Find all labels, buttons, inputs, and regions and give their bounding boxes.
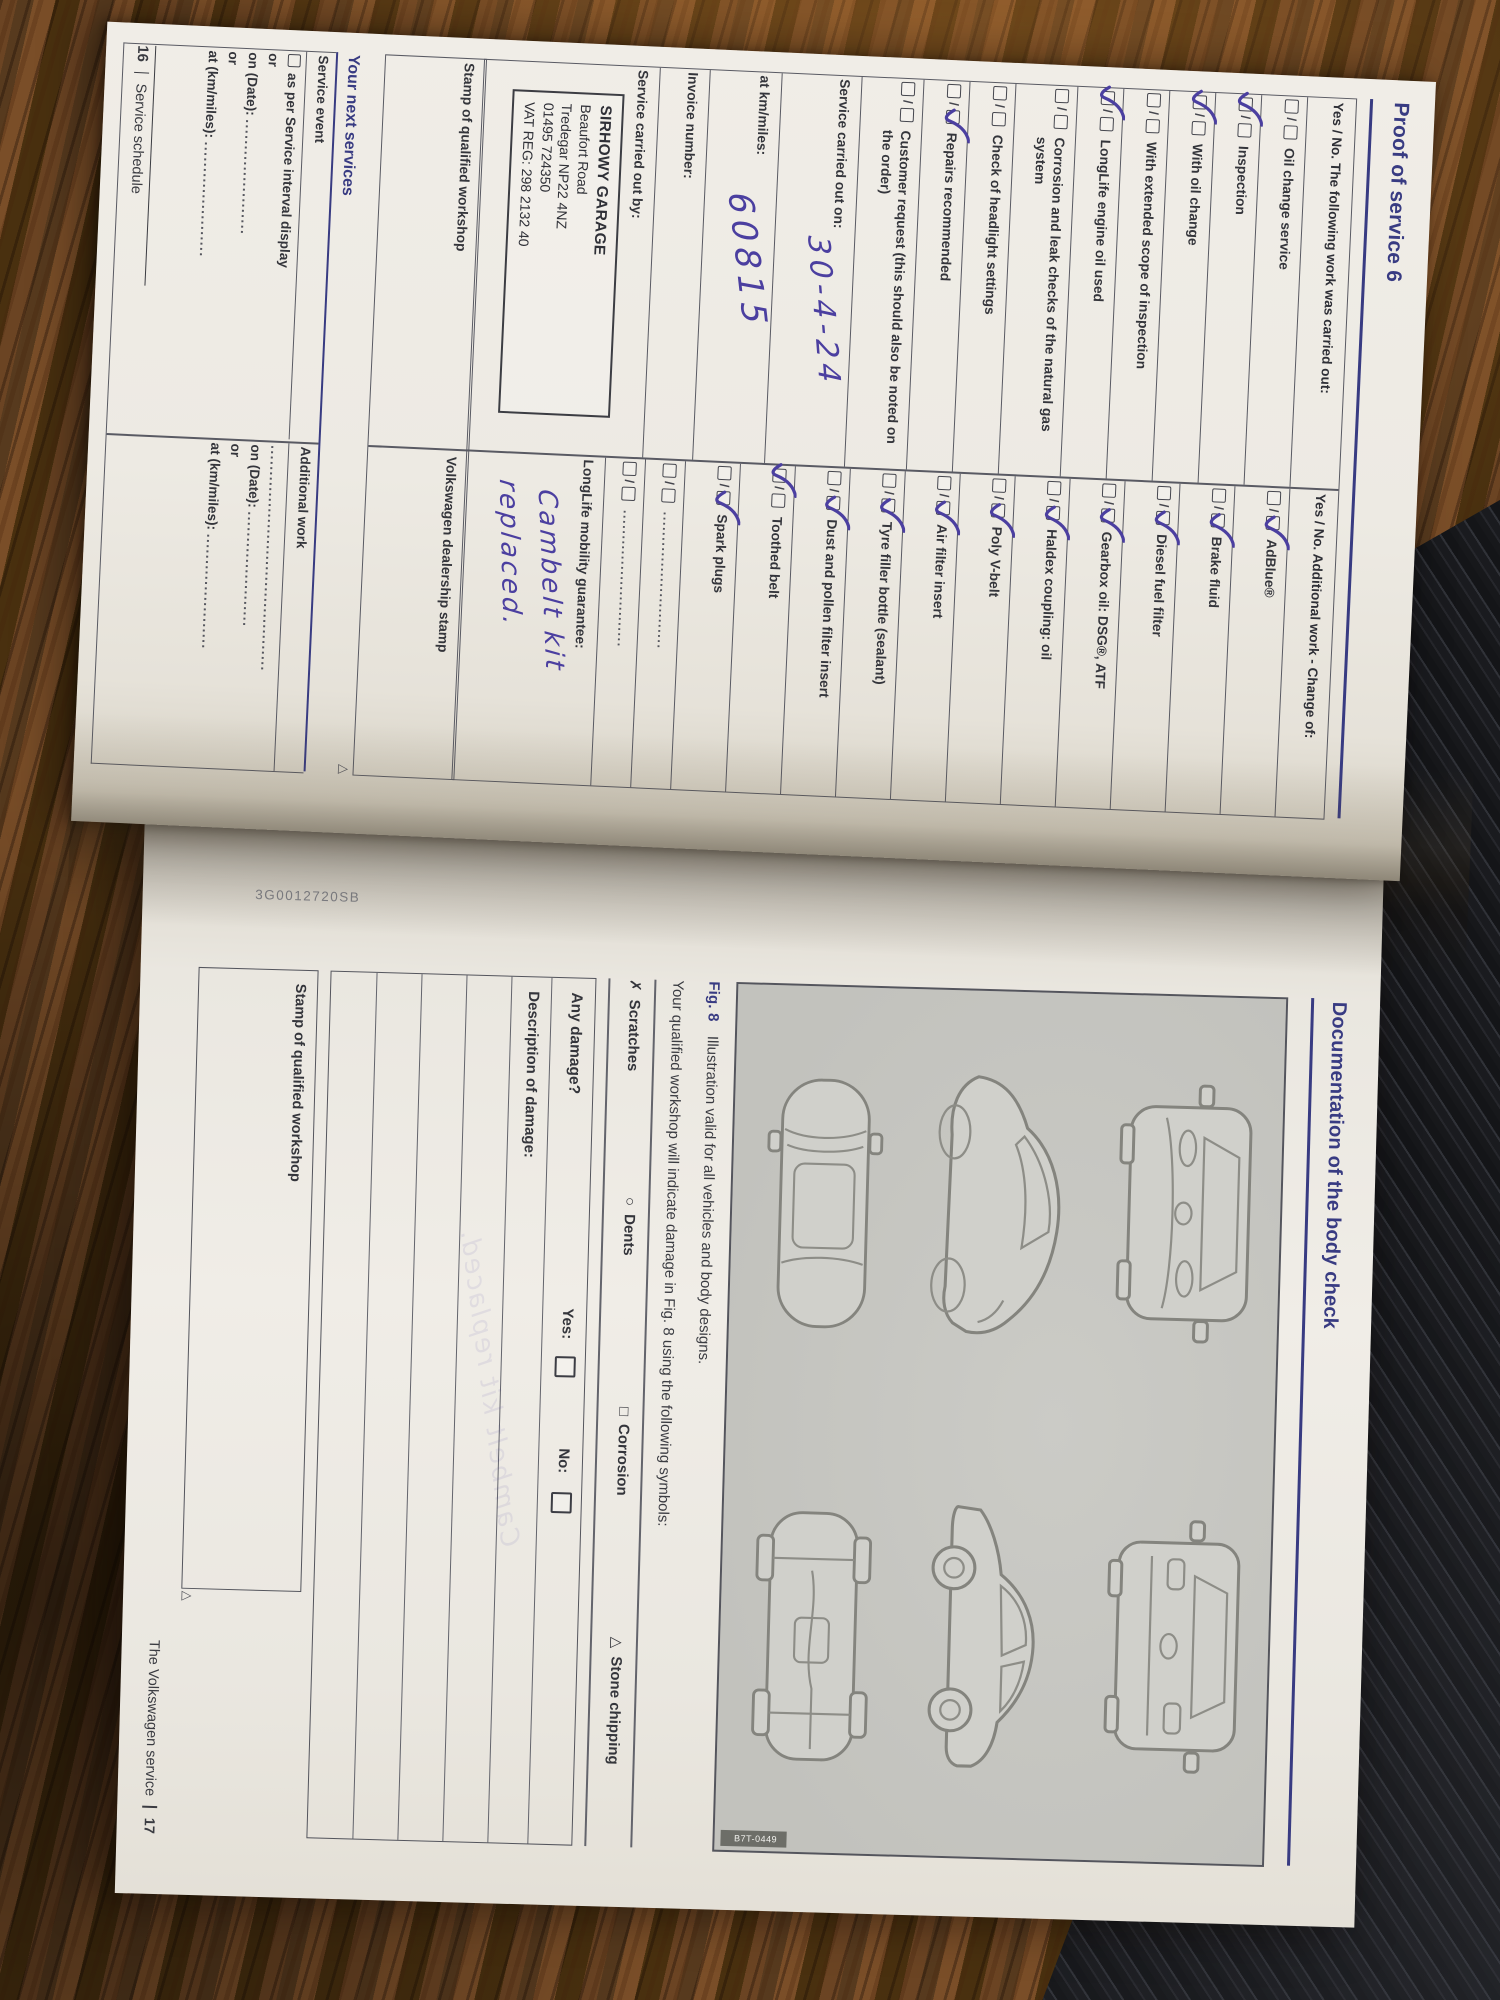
- yes-checkbox: [1055, 89, 1070, 104]
- workshop-stamp-area: Stamp of qualified workshop: [181, 967, 318, 1592]
- yes-no-checkbox-pair: /: [1101, 483, 1118, 523]
- slash: /: [937, 493, 952, 497]
- yes-checkbox: [1102, 483, 1117, 498]
- mobility-handwriting: Cambelt kit: [532, 488, 570, 673]
- heading-rule: [1287, 998, 1314, 1866]
- car-view-top-icon: [732, 984, 920, 1422]
- description-of-damage-label: Description of damage:: [520, 991, 542, 1158]
- checklist-item-label: Oil change service: [1275, 148, 1298, 271]
- km-label: at km/miles:: [754, 75, 773, 155]
- no-checkbox: [900, 107, 915, 122]
- handwritten-tick-icon: [1150, 508, 1182, 545]
- corner-continuation-mark: △: [179, 1591, 195, 1601]
- figure-code-chip: B7T-0449: [720, 1830, 786, 1848]
- service-date-value: 30-4-24: [800, 235, 847, 388]
- slash: /: [882, 491, 897, 495]
- legend-dents: ○Dents: [615, 1197, 639, 1407]
- yes-no-checkbox-pair: /: [1266, 490, 1283, 530]
- yes-checkbox: [901, 82, 916, 97]
- car-view-front-quarter-icon: [908, 989, 1106, 1427]
- slash: /: [1146, 111, 1161, 115]
- form-part-number: 3G0012720SB: [255, 887, 415, 906]
- no-checkbox: [662, 489, 677, 504]
- legend-scratches: ✗Scratches: [620, 979, 644, 1197]
- checklist-item-label: Check of headlight settings: [980, 134, 1006, 315]
- yes-no-checkbox-pair: /: [661, 463, 678, 503]
- yes-no-checkbox-pair: /: [1211, 488, 1228, 528]
- handwritten-tick-icon: [1040, 503, 1072, 540]
- legend-stone-chipping: △Stone chipping: [605, 1637, 627, 1765]
- slash: /: [946, 102, 961, 106]
- damage-no-checkbox: [551, 1492, 573, 1514]
- slash: /: [992, 496, 1007, 500]
- handwritten-tick-icon: [1260, 513, 1292, 550]
- invoice-label: Invoice number:: [681, 72, 701, 179]
- figure-code: B7T-0449: [723, 1833, 787, 1845]
- yes-no-checkbox-pair: /: [1046, 480, 1063, 520]
- small-checkbox: [288, 54, 302, 68]
- handwritten-tick-icon: [1095, 84, 1127, 121]
- carried-out-by-field: Service carried out by: SIRHOWY GARAGE B…: [469, 60, 661, 457]
- damage-report-table: Any damage? Yes: No: Description of dama…: [306, 971, 596, 1846]
- garage-stamp: SIRHOWY GARAGE Beaufort Road Tredegar NP…: [498, 89, 625, 418]
- checklist-item-label: Diesel fuel filter: [1148, 534, 1170, 637]
- handwritten-tick-icon: [930, 498, 962, 535]
- figure-label: Fig. 8: [704, 981, 722, 1022]
- dotted-line: ......................: [197, 141, 217, 258]
- slash: /: [717, 483, 732, 487]
- dotted-line: ...........................: [654, 511, 675, 650]
- dent-circle-icon: ○: [621, 1197, 638, 1207]
- handwritten-tick-icon: [1205, 511, 1237, 548]
- yes-no-checkbox-pair: /: [1054, 89, 1071, 129]
- car-view-underbody-icon: [720, 1417, 908, 1855]
- yes-no-checkbox-pair: /: [621, 461, 638, 501]
- page-footer: The Volkswagen service17: [140, 1494, 165, 1834]
- yes-no-checkbox-pair: /: [1145, 93, 1162, 133]
- slash: /: [1266, 508, 1281, 512]
- yes-checkbox: [1267, 490, 1282, 505]
- yes-checkbox: [992, 478, 1007, 493]
- handwritten-tick-icon: [1187, 88, 1219, 125]
- checklist-item-label: Corrosion and leak checks of the natural…: [1018, 136, 1068, 471]
- checklist-item-label: Haldex coupling: oil: [1037, 529, 1061, 661]
- stone-chip-triangle-icon: △: [608, 1637, 625, 1649]
- checklist-item-label: Tyre filler bottle (sealant): [870, 521, 895, 685]
- yes-checkbox: [663, 463, 678, 478]
- km-value: 60815: [719, 192, 775, 330]
- checklist-item-label: Air filter insert: [929, 524, 951, 619]
- next-services-table: Service event as per Service interval di…: [91, 42, 337, 773]
- no-checkbox: [622, 487, 637, 502]
- footer-brand: The Volkswagen service: [141, 1640, 161, 1797]
- car-view-front-icon: [1094, 994, 1286, 1432]
- mobility-handwriting: replaced.: [493, 478, 527, 629]
- yes-no-checkbox-pair: /: [826, 470, 843, 510]
- handwritten-tick-icon: [1095, 506, 1127, 543]
- mobility-guarantee-label: LongLife mobility guarantee:: [572, 459, 596, 649]
- yes-checkbox: [1212, 488, 1227, 503]
- page-16-paper: Proof of service 6 Yes / No. The followi…: [71, 22, 1436, 882]
- handwritten-tick-icon: [1233, 90, 1265, 127]
- any-damage-label: Any damage?: [565, 992, 585, 1094]
- slash: /: [1054, 107, 1069, 111]
- slash: /: [1211, 506, 1226, 510]
- no-checkbox: [1146, 119, 1161, 134]
- yes-no-checkbox-pair: /: [771, 468, 788, 508]
- yes-no-checkbox-pair: /: [946, 84, 963, 124]
- yes-no-checkbox-pair: /: [1237, 97, 1254, 137]
- service-date-label: Service carried out on:: [831, 79, 853, 229]
- page-number: 17: [140, 1818, 156, 1835]
- corner-continuation-mark: △: [335, 764, 351, 775]
- damage-yes-checkbox: [554, 1356, 576, 1378]
- handwritten-tick-icon: [875, 496, 907, 533]
- yes-no-checkbox-pair: /: [936, 475, 953, 515]
- checklist-item-label: Inspection: [1231, 146, 1252, 216]
- slash: /: [992, 104, 1007, 108]
- yes-no-checkbox-pair: /: [992, 86, 1009, 126]
- slash: /: [1101, 501, 1116, 505]
- damage-symbols-legend: ✗Scratches ○Dents □Corrosion △Stone chip…: [602, 979, 644, 1847]
- checklist-item-label: Repairs recommended: [936, 132, 960, 281]
- handwritten-tick-icon: [940, 107, 972, 144]
- checklist-item-label: With extended scope of inspection: [1132, 141, 1160, 369]
- page-title: Proof of service 6: [1381, 102, 1413, 283]
- legend-corrosion: □Corrosion: [608, 1407, 632, 1637]
- checklist-item-label: Toothed belt: [764, 516, 785, 598]
- corrosion-square-icon: □: [615, 1407, 632, 1417]
- yes-checkbox: [883, 473, 898, 488]
- dotted-line: ......................: [199, 534, 219, 651]
- yes-checkbox: [718, 465, 733, 480]
- page-number: 16: [134, 45, 152, 62]
- no-label: No:: [555, 1448, 573, 1473]
- page-title: Documentation of the body check: [1318, 1001, 1350, 1329]
- yes-checkbox: [623, 461, 638, 476]
- yes-checkbox: [1157, 485, 1172, 500]
- car-view-side-icon: [896, 1422, 1094, 1860]
- body-check-figure-panel: B7T-0449: [712, 982, 1288, 1867]
- figure-caption: Fig. 8 Illustration valid for all vehicl…: [695, 981, 723, 1364]
- mobility-guarantee-field: LongLife mobility guarantee: Cambelt kit…: [454, 451, 606, 785]
- handwritten-tick-icon: [985, 501, 1017, 538]
- yes-no-checkbox-pair: /: [1191, 95, 1208, 135]
- checklist-item-label: Spark plugs: [709, 514, 730, 594]
- yes-no-checkbox-pair: /: [900, 82, 917, 122]
- checklist-item-label: Customer request (this should also be no…: [864, 129, 914, 464]
- stamp-right-label: Volkswagen dealership stamp: [435, 456, 459, 653]
- yes-checkbox: [1047, 480, 1062, 495]
- slash: /: [662, 481, 677, 485]
- yes-checkbox: [947, 84, 962, 99]
- car-view-rear-icon: [1082, 1427, 1274, 1865]
- yes-label: Yes:: [558, 1308, 576, 1339]
- yes-checkbox: [1147, 93, 1162, 108]
- yes-no-checkbox-pair: /: [1283, 99, 1300, 139]
- checklist-item-label: With oil change: [1184, 143, 1206, 246]
- checklist-item-label: Dust and pollen filter insert: [815, 519, 841, 698]
- carried-out-by-label: Service carried out by:: [629, 70, 651, 219]
- no-checkbox: [992, 112, 1007, 127]
- column-divider: [368, 445, 468, 451]
- slash: /: [1047, 498, 1062, 502]
- footer-divider: [142, 1806, 157, 1808]
- checklist-item-label: LongLife engine oil used: [1089, 139, 1114, 302]
- next-services-heading: Your next services: [338, 54, 362, 196]
- yes-checkbox: [828, 470, 843, 485]
- handwritten-tick-icon: [710, 488, 742, 525]
- slash: /: [1284, 117, 1299, 121]
- checklist-item-label: Gearbox oil: DSG®, ATF: [1090, 531, 1115, 689]
- yes-checkbox: [993, 86, 1008, 101]
- stamp-area-label: Stamp of qualified workshop: [275, 971, 317, 1591]
- page-17-paper: Documentation of the body check: [115, 793, 1385, 1927]
- handwritten-tick-icon: [820, 493, 852, 530]
- scratch-x-icon: ✗: [626, 979, 643, 992]
- slash: /: [622, 479, 637, 483]
- yes-no-checkbox-pair: /: [1156, 485, 1173, 525]
- yes-checkbox: [938, 475, 953, 490]
- yes-no-checkbox-pair: /: [881, 473, 898, 513]
- photo-of-service-booklet: Documentation of the body check: [0, 0, 1500, 2000]
- handwritten-tick-icon: [767, 461, 799, 498]
- dotted-line: ...........................: [614, 510, 635, 649]
- yes-no-checkbox-pair: /: [991, 478, 1008, 518]
- footer-divider: [134, 72, 149, 74]
- yes-no-checkbox-pair: /: [716, 465, 733, 505]
- no-checkbox: [1284, 125, 1299, 140]
- slash: /: [827, 488, 842, 492]
- no-checkbox: [1054, 114, 1069, 129]
- slash: /: [900, 100, 915, 104]
- stamp-left-label: Stamp of qualified workshop: [453, 63, 477, 252]
- service-checklist-table: Yes / No. The following work was carried…: [451, 59, 1357, 820]
- yes-no-checkbox-pair: /: [1099, 91, 1116, 131]
- slash: /: [1156, 503, 1171, 507]
- yes-checkbox: [1285, 99, 1300, 114]
